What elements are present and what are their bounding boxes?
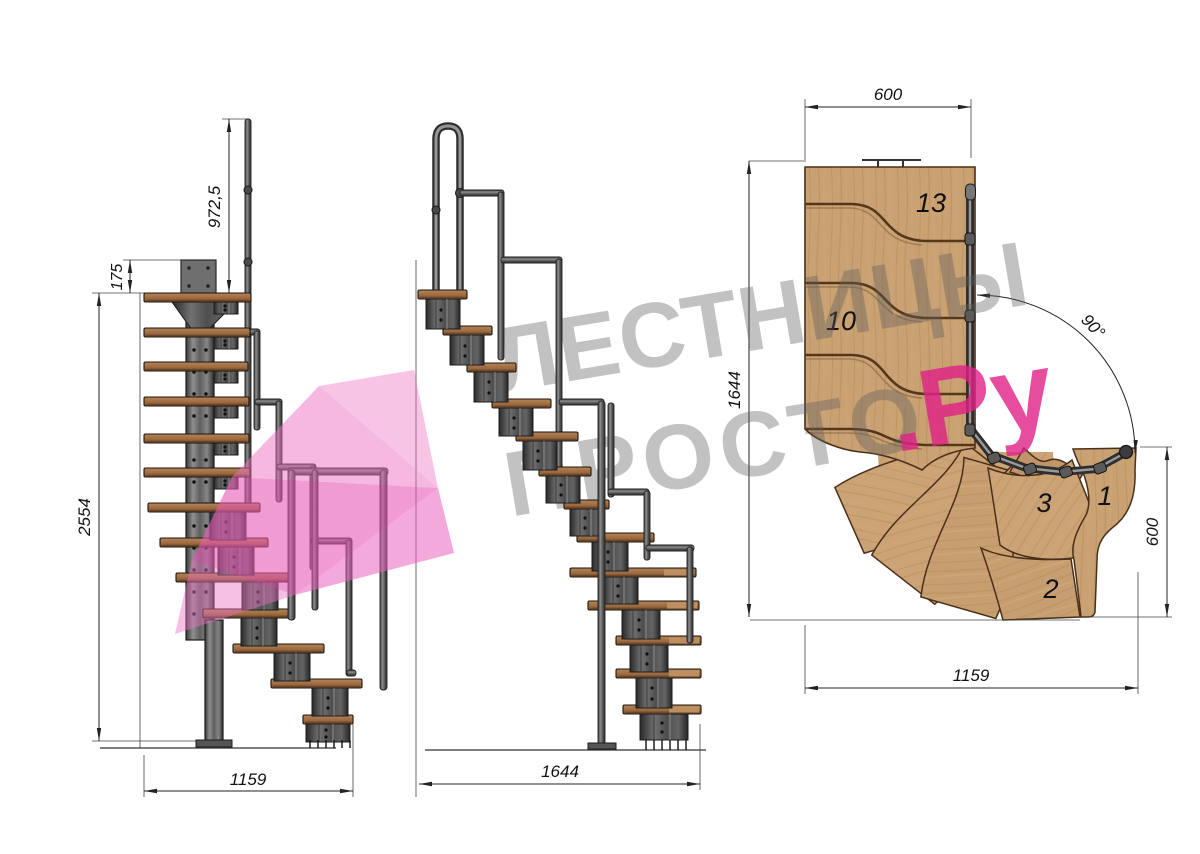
svg-text:1159: 1159 <box>230 770 267 789</box>
svg-text:1159: 1159 <box>953 666 990 685</box>
svg-text:13: 13 <box>916 188 946 218</box>
svg-text:1644: 1644 <box>541 762 579 781</box>
svg-text:972,5: 972,5 <box>205 185 224 228</box>
svg-text:2: 2 <box>1042 574 1058 604</box>
svg-text:1: 1 <box>1097 481 1112 511</box>
svg-text:175: 175 <box>109 264 126 291</box>
svg-text:600: 600 <box>874 85 903 104</box>
svg-text:2554: 2554 <box>75 498 94 537</box>
svg-text:600: 600 <box>1143 517 1162 546</box>
svg-text:3: 3 <box>1036 488 1051 518</box>
